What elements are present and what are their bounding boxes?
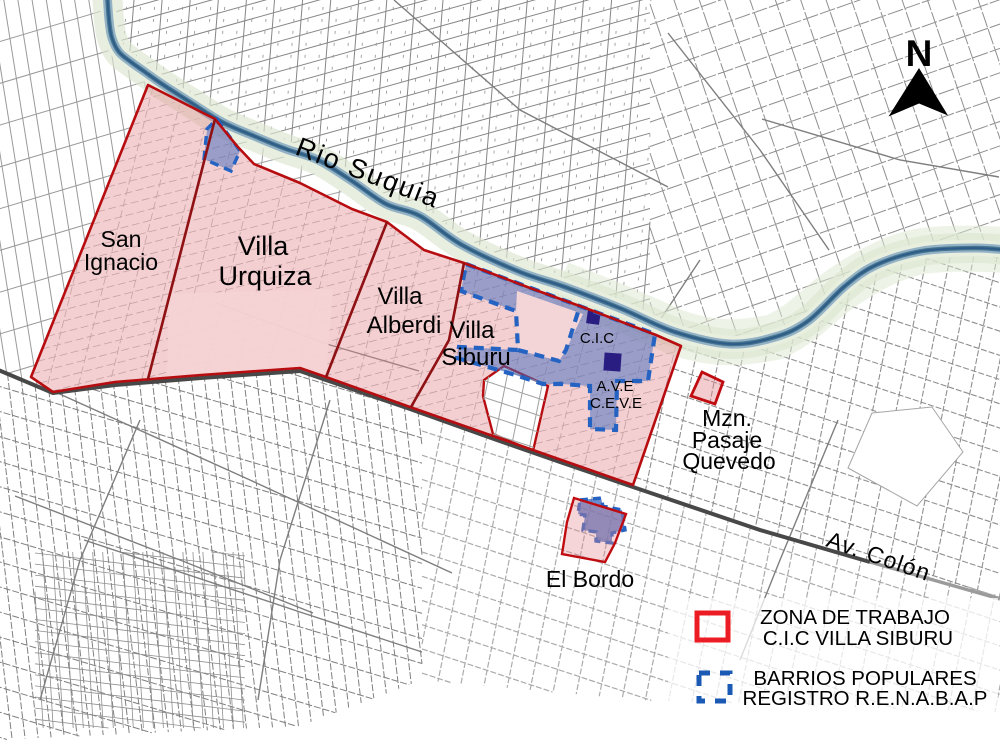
svg-text:Ignacio: Ignacio <box>84 249 158 275</box>
svg-text:N: N <box>906 33 933 74</box>
svg-text:Quevedo: Quevedo <box>682 448 775 474</box>
svg-text:Villa: Villa <box>378 283 424 310</box>
svg-text:Alberdi: Alberdi <box>367 312 442 339</box>
svg-text:Villa: Villa <box>238 231 290 261</box>
svg-text:Siburu: Siburu <box>441 344 510 371</box>
svg-text:C.E.V.E: C.E.V.E <box>590 395 642 412</box>
svg-text:Urquiza: Urquiza <box>218 261 312 291</box>
svg-text:ZONA DE TRABAJO: ZONA DE TRABAJO <box>760 606 950 629</box>
svg-text:A.V.E: A.V.E <box>597 378 634 395</box>
svg-text:Villa: Villa <box>450 317 496 344</box>
svg-text:REGISTRO R.E.N.A.B.A.P: REGISTRO R.E.N.A.B.A.P <box>743 687 988 710</box>
svg-text:C.I.C VILLA SIBURU: C.I.C VILLA SIBURU <box>763 627 953 650</box>
svg-text:El Bordo: El Bordo <box>546 566 634 592</box>
svg-text:C.I.C: C.I.C <box>580 330 614 347</box>
